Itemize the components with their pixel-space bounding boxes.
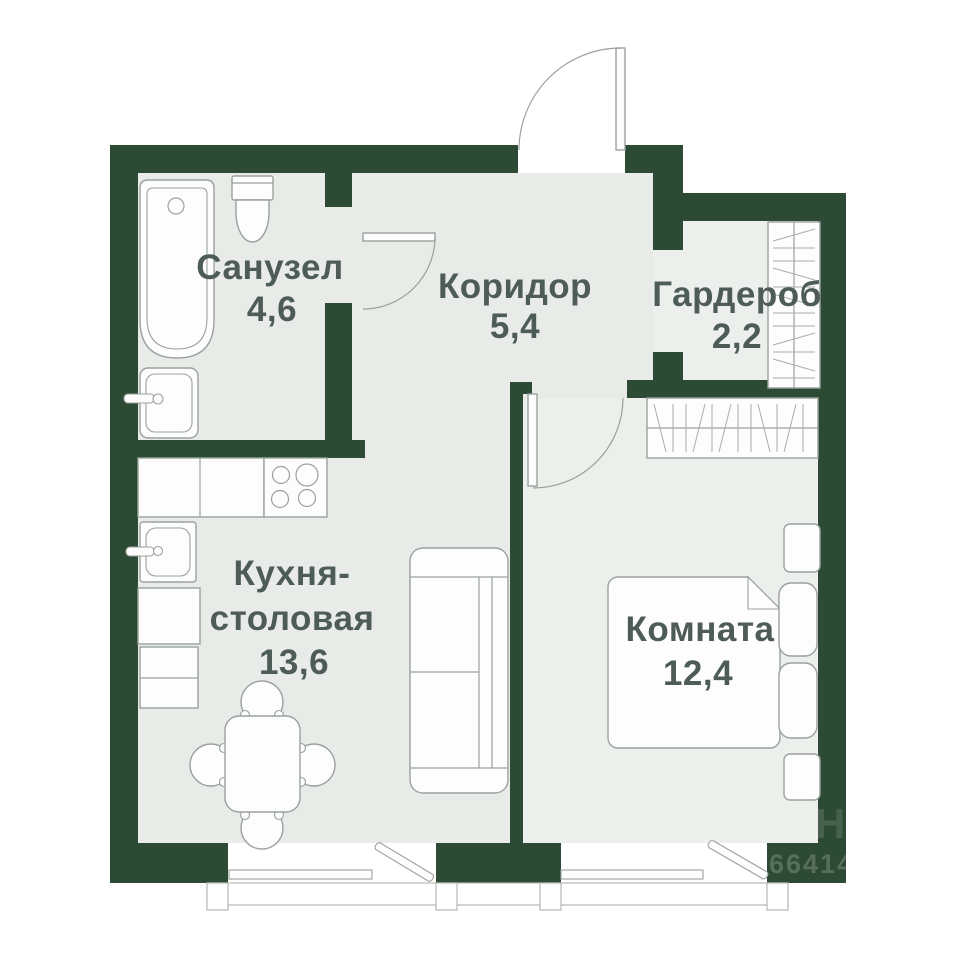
label-corridor-area: 5,4 <box>490 307 540 347</box>
kitchen-sink-icon <box>126 522 196 582</box>
balcony-door-leaf <box>707 840 769 880</box>
label-kitchen-area: 13,6 <box>259 643 329 683</box>
label-bathroom-area: 4,6 <box>247 290 297 330</box>
fridge-icon <box>140 647 198 708</box>
bedroom-door <box>528 394 623 488</box>
label-bedroom-name: Комната <box>626 610 775 650</box>
dining-table-icon <box>190 681 335 849</box>
sofa-icon <box>410 548 508 793</box>
nightstand-icon <box>784 524 820 572</box>
label-corridor-name: Коридор <box>438 267 592 307</box>
balcony-rail-icon <box>207 883 788 910</box>
bathroom-sink-icon <box>124 368 198 438</box>
balcony-door-leaf <box>374 842 435 883</box>
pillow-icon <box>779 583 817 656</box>
kitchen-counter-icon <box>138 458 264 517</box>
pillow-icon <box>779 663 817 738</box>
watermark-number: 66414 <box>769 849 854 880</box>
label-bathroom-name: Санузел <box>196 248 343 288</box>
closet-horizontal-icon <box>647 398 818 458</box>
toilet-icon <box>232 176 273 242</box>
label-kitchen-name-line2: столовая <box>210 599 375 639</box>
bedroom-window-icon <box>561 840 769 880</box>
label-bedroom-area: 12,4 <box>663 654 733 694</box>
entrance-door <box>519 48 625 150</box>
kitchen-counter2-icon <box>138 588 200 644</box>
label-wardrobe-area: 2,2 <box>712 317 762 357</box>
stove-icon <box>264 458 327 517</box>
bathroom-door <box>363 233 435 309</box>
label-kitchen-name-line1: Кухня- <box>234 554 351 594</box>
label-wardrobe-name: Гардероб <box>652 275 821 315</box>
nightstand-icon <box>784 754 820 800</box>
watermark-ghost-letter: Н <box>815 800 845 848</box>
floor-plan: Санузел 4,6 Коридор 5,4 Гардероб 2,2 Кух… <box>0 0 960 960</box>
